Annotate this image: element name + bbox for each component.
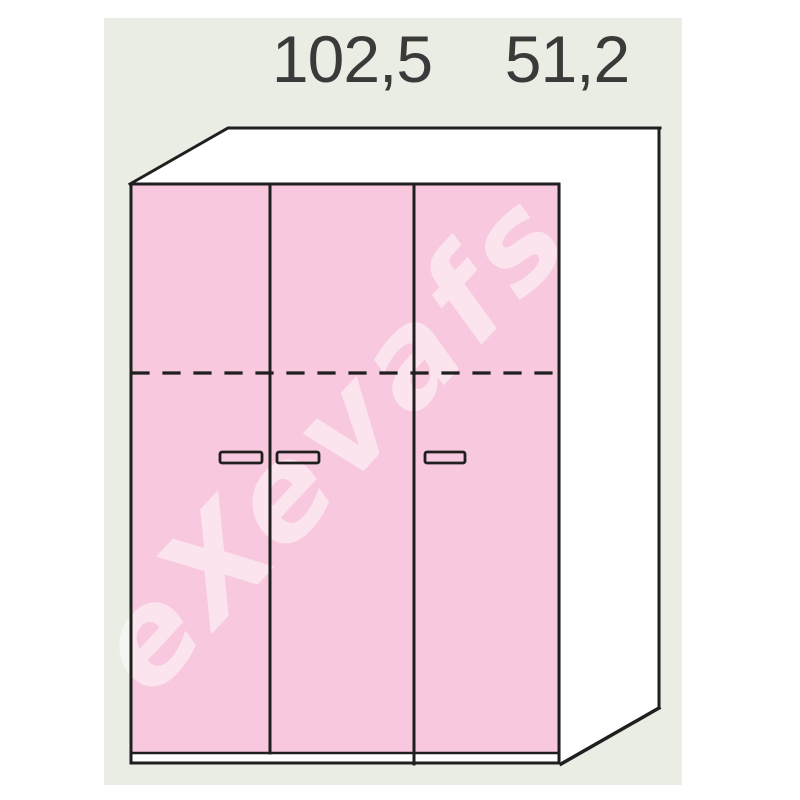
wardrobe-side-face [561,128,660,764]
page: 102,5 51,2 eXevafs [0,0,800,800]
wardrobe-drawing: eXevafs [0,0,800,800]
